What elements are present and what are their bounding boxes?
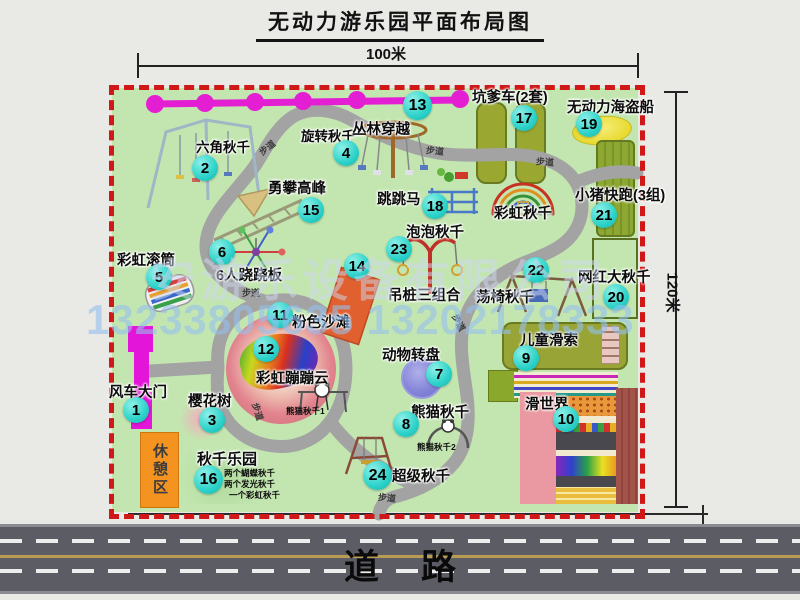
badge-17: 17 bbox=[511, 105, 537, 131]
badge-1: 1 bbox=[123, 397, 149, 423]
badge-13: 13 bbox=[403, 91, 432, 120]
label-rainbow-swing: 彩虹秋千 bbox=[494, 202, 552, 223]
badge-3: 3 bbox=[199, 407, 225, 433]
badge-11: 11 bbox=[267, 302, 293, 328]
label-pink-beach: 粉色沙滩 bbox=[292, 311, 350, 332]
badge-22: 22 bbox=[523, 257, 549, 283]
badge-5: 5 bbox=[146, 264, 172, 290]
badge-21: 21 bbox=[591, 202, 617, 228]
label-panda-swing: 熊猫秋千 bbox=[411, 401, 469, 422]
windmill-gate-icon bbox=[128, 326, 153, 352]
label-panda-swing-1: 熊猫秋千1 bbox=[286, 405, 325, 417]
label-six-seat-seesaw: 6人跷跷板 bbox=[216, 264, 282, 285]
label-pig-run: 小猪快跑(3组) bbox=[575, 184, 665, 205]
park-layout-plan: 无动力游乐园平面布局图 100米 120米 bbox=[0, 0, 800, 600]
badge-9: 9 bbox=[513, 345, 539, 371]
rest-area-label: 休憩区 bbox=[149, 443, 170, 497]
badge-2: 2 bbox=[192, 155, 218, 181]
badge-20: 20 bbox=[603, 284, 629, 310]
label-hanging-post-combo: 吊桩三组合 bbox=[388, 284, 461, 305]
badge-24: 24 bbox=[363, 461, 392, 490]
badge-4: 4 bbox=[333, 140, 359, 166]
badge-7: 7 bbox=[426, 361, 452, 387]
path-label: 步道 bbox=[242, 286, 260, 299]
badge-18: 18 bbox=[422, 193, 448, 219]
label-super-swing: 超级秋千 bbox=[392, 465, 450, 486]
badge-19: 19 bbox=[576, 111, 602, 137]
path-label: 步道 bbox=[536, 154, 555, 168]
badge-15: 15 bbox=[298, 197, 324, 223]
label-rainbow-bounce-cloud: 彩虹蹦蹦云 bbox=[256, 367, 329, 388]
badge-12: 12 bbox=[253, 336, 279, 362]
badge-16: 16 bbox=[194, 465, 223, 494]
label-jumping-horse: 跳跳马 bbox=[377, 188, 421, 209]
label-bubble-swing: 泡泡秋千 bbox=[406, 221, 464, 242]
label-panda-swing-2: 熊猫秋千2 bbox=[417, 441, 456, 453]
badge-23: 23 bbox=[386, 236, 412, 262]
label-hexagon-swing: 六角秋千 bbox=[196, 136, 250, 156]
badge-10: 10 bbox=[553, 406, 579, 432]
label-jungle-crossing: 丛林穿越 bbox=[352, 118, 410, 139]
label-swing-park-note3: 一个彩虹秋千 bbox=[229, 489, 280, 501]
path-label: 步道 bbox=[425, 143, 444, 158]
label-kart-track: 坑爹车(2套) bbox=[472, 86, 548, 107]
label-swing-chair: 荡椅秋千 bbox=[476, 286, 534, 307]
rest-area: 休憩区 bbox=[140, 432, 179, 508]
road-label: 道路 bbox=[0, 539, 800, 590]
badge-6: 6 bbox=[209, 239, 235, 265]
badge-8: 8 bbox=[393, 411, 419, 437]
path-label: 步道 bbox=[377, 490, 396, 505]
road: 道路 bbox=[0, 524, 800, 594]
hanging-post-combo-icon bbox=[320, 267, 379, 344]
badge-14: 14 bbox=[344, 253, 370, 279]
label-climbing-peak: 勇攀高峰 bbox=[268, 177, 326, 198]
label-animal-turntable: 动物转盘 bbox=[382, 344, 440, 365]
